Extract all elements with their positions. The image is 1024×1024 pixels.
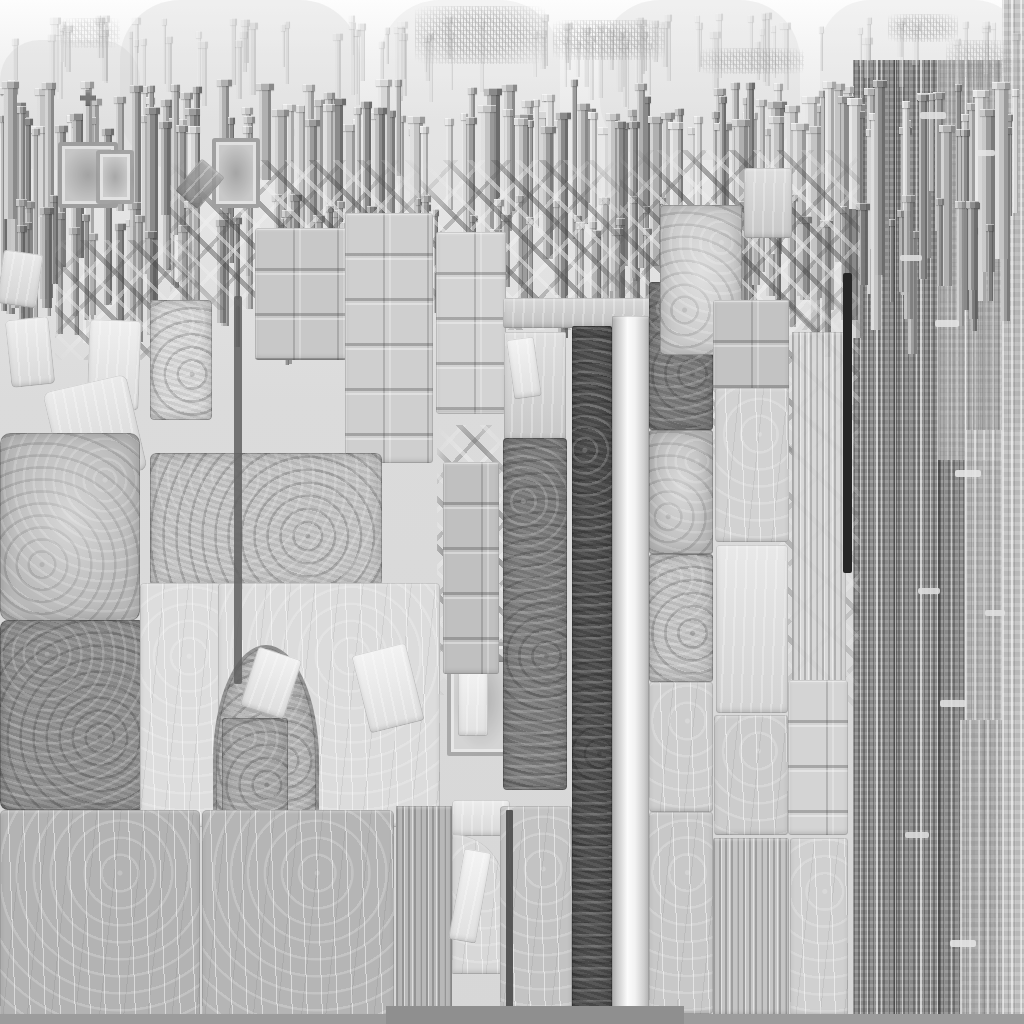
pinnacle-picket <box>1013 95 1018 213</box>
slab <box>790 838 848 1016</box>
bottom-band-dark <box>386 1006 684 1024</box>
slab <box>649 554 713 682</box>
pinnacle-picket <box>968 207 977 289</box>
floor-slab <box>202 810 394 1020</box>
slab-top <box>744 168 792 238</box>
slab-worn <box>0 433 140 621</box>
block-stack <box>713 300 789 392</box>
pinnacle-picket <box>163 24 166 84</box>
pinnacle-picket <box>350 28 355 94</box>
slab <box>649 430 713 554</box>
panel-dash <box>900 255 922 261</box>
panel-dash <box>950 940 976 947</box>
filigree-cluster <box>553 20 665 60</box>
pinnacle-picket <box>13 44 18 82</box>
slab-light <box>140 583 222 827</box>
pinnacle-picket <box>859 33 862 66</box>
slab-dark <box>0 620 147 810</box>
texture-image <box>0 0 1024 1024</box>
pinnacle-picket <box>285 27 289 84</box>
pinnacle-picket <box>988 230 993 300</box>
pinnacle-picket <box>995 88 1008 259</box>
panel-dash <box>975 150 995 156</box>
filigree-cluster <box>888 14 958 42</box>
slab <box>715 388 789 542</box>
block-stack <box>436 232 506 414</box>
pinnacle-picket <box>890 225 894 302</box>
dark-seam <box>506 810 513 1016</box>
pinnacle-picket <box>161 127 170 216</box>
floor-slab <box>0 810 200 1020</box>
block-stack <box>255 228 347 360</box>
pinnacle-picket <box>875 86 884 275</box>
pinnacle-picket <box>937 204 943 286</box>
pinnacle-picket <box>129 37 132 92</box>
pinnacle-picket <box>335 39 342 106</box>
panel-dash <box>955 470 981 477</box>
niche-frame <box>96 150 134 204</box>
filigree-cluster <box>415 6 547 64</box>
jointed-slab <box>788 680 848 835</box>
pinnacle-picket <box>957 207 964 325</box>
filigree-cluster <box>700 48 804 74</box>
striped-column <box>713 838 789 1016</box>
framed-cells <box>443 462 499 674</box>
slab <box>649 682 713 812</box>
dark-strip <box>572 326 612 1016</box>
pinnacle-picket <box>200 47 207 106</box>
column-piece <box>150 300 212 420</box>
pinnacle-picket <box>1013 39 1019 95</box>
panel-dash <box>940 700 966 707</box>
slab <box>714 715 788 835</box>
pilaster-strip <box>396 806 452 1018</box>
panel-dash <box>985 610 1005 616</box>
light-strip <box>612 316 649 1018</box>
slab-bright <box>716 545 788 713</box>
slab <box>649 812 713 1014</box>
pinnacle-picket <box>820 32 823 71</box>
white-chip <box>5 316 56 388</box>
panel-dash <box>918 588 940 594</box>
block-stack <box>345 213 433 463</box>
black-rod <box>843 273 852 573</box>
wide-slab <box>150 453 382 587</box>
pinnacle-picket <box>919 100 927 279</box>
pinnacle-picket <box>360 29 365 81</box>
pinnacle-picket <box>134 45 138 90</box>
white-chip <box>0 249 44 308</box>
pinnacle-picket <box>236 46 242 99</box>
pinnacle-picket <box>401 39 407 96</box>
pinnacle-picket <box>4 87 16 219</box>
pinnacle-picket <box>941 131 952 287</box>
pinnacle-picket <box>42 213 51 308</box>
filigree-cluster <box>946 40 1012 82</box>
slab-dark-center <box>503 438 567 790</box>
panel-dash <box>935 320 959 327</box>
filigree-cluster <box>60 18 120 48</box>
pinnacle-picket <box>867 23 871 62</box>
dark-seam <box>234 296 242 684</box>
pinnacle-picket <box>242 25 248 63</box>
pinnacle-picket <box>386 33 389 64</box>
panel-dash <box>905 832 929 838</box>
panel-dash <box>920 112 946 119</box>
